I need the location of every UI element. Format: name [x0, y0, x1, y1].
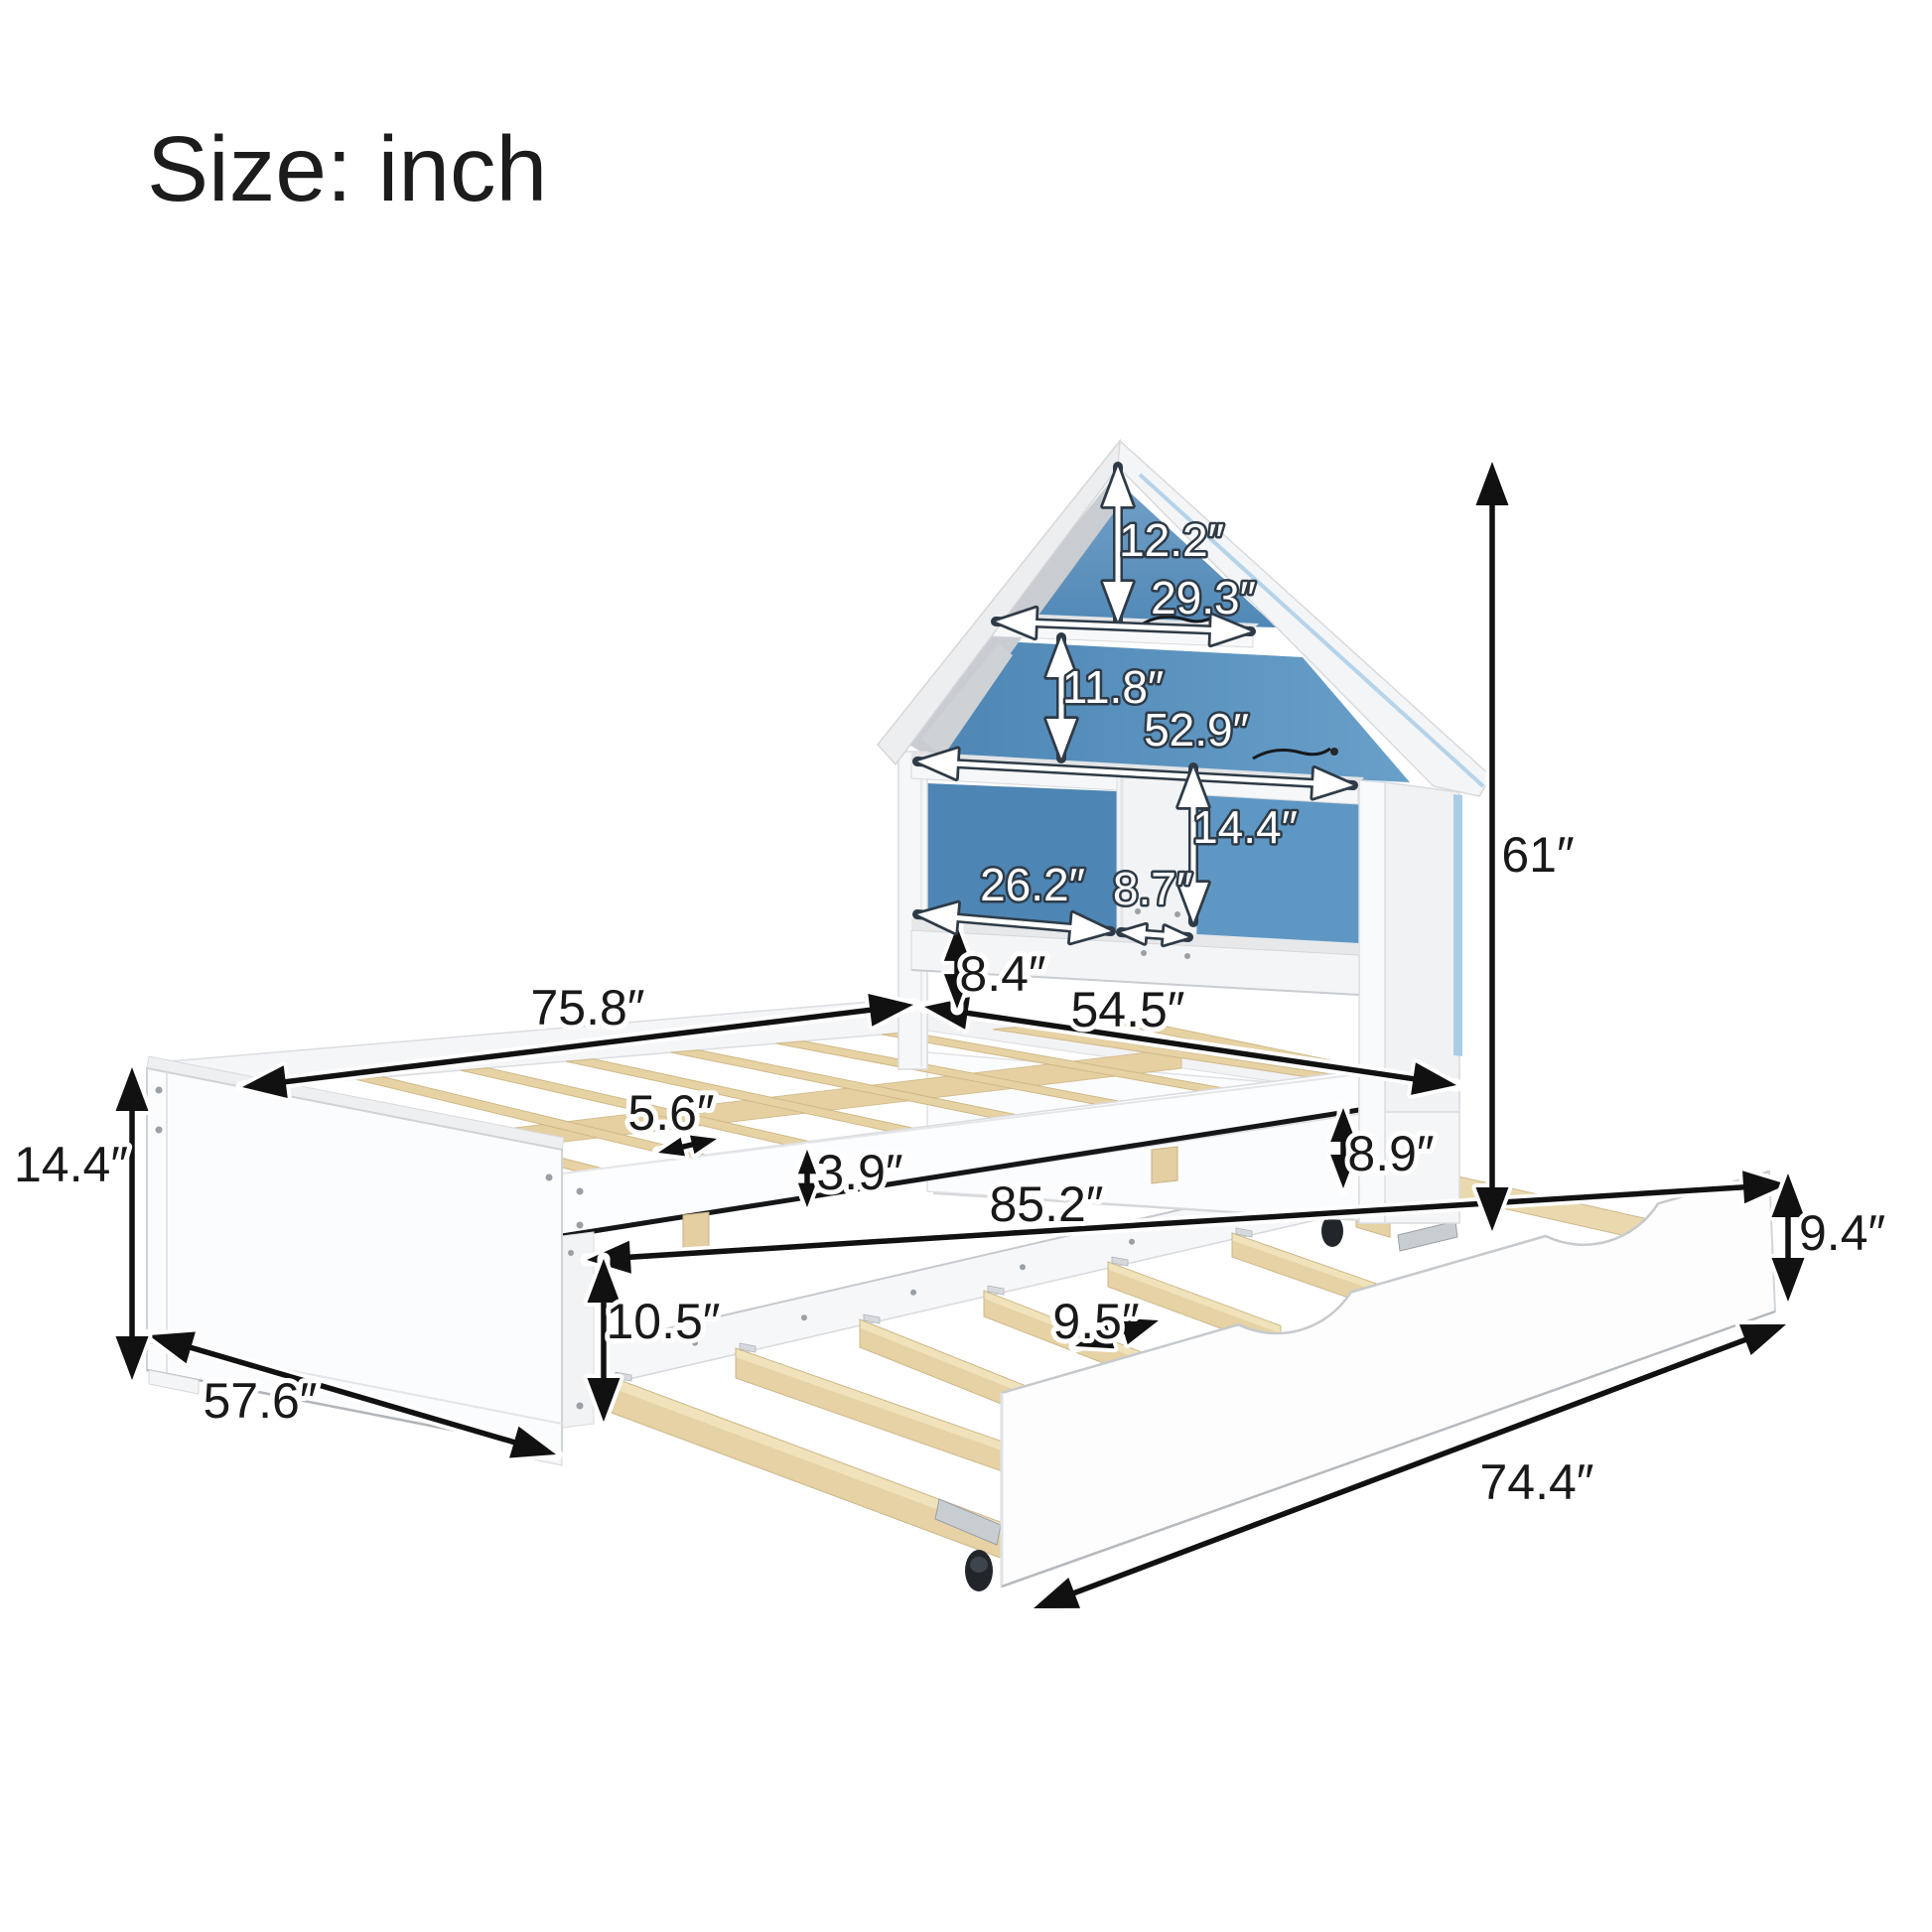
- svg-text:74.4″: 74.4″: [1479, 1454, 1593, 1510]
- svg-text:8.7″: 8.7″: [1113, 863, 1192, 914]
- svg-text:8.9″: 8.9″: [1347, 1126, 1434, 1181]
- svg-text:12.2″: 12.2″: [1119, 514, 1224, 566]
- svg-text:14.4″: 14.4″: [1192, 801, 1298, 853]
- svg-text:5.6″: 5.6″: [627, 1085, 714, 1141]
- svg-text:9.5″: 9.5″: [1052, 1294, 1139, 1349]
- svg-text:52.9″: 52.9″: [1144, 704, 1249, 756]
- svg-text:8.4″: 8.4″: [959, 946, 1045, 1002]
- svg-text:61″: 61″: [1501, 827, 1574, 883]
- svg-text:Size: inch: Size: inch: [147, 117, 547, 220]
- svg-text:57.6″: 57.6″: [203, 1373, 317, 1429]
- svg-text:54.5″: 54.5″: [1070, 982, 1184, 1037]
- svg-text:10.5″: 10.5″: [606, 1294, 720, 1349]
- svg-text:85.2″: 85.2″: [989, 1176, 1103, 1232]
- svg-text:29.3″: 29.3″: [1151, 572, 1256, 623]
- svg-text:9.4″: 9.4″: [1799, 1205, 1885, 1261]
- svg-text:26.2″: 26.2″: [980, 859, 1085, 910]
- svg-text:3.9″: 3.9″: [816, 1145, 902, 1200]
- svg-text:75.8″: 75.8″: [530, 980, 644, 1035]
- svg-text:14.4″: 14.4″: [14, 1137, 128, 1192]
